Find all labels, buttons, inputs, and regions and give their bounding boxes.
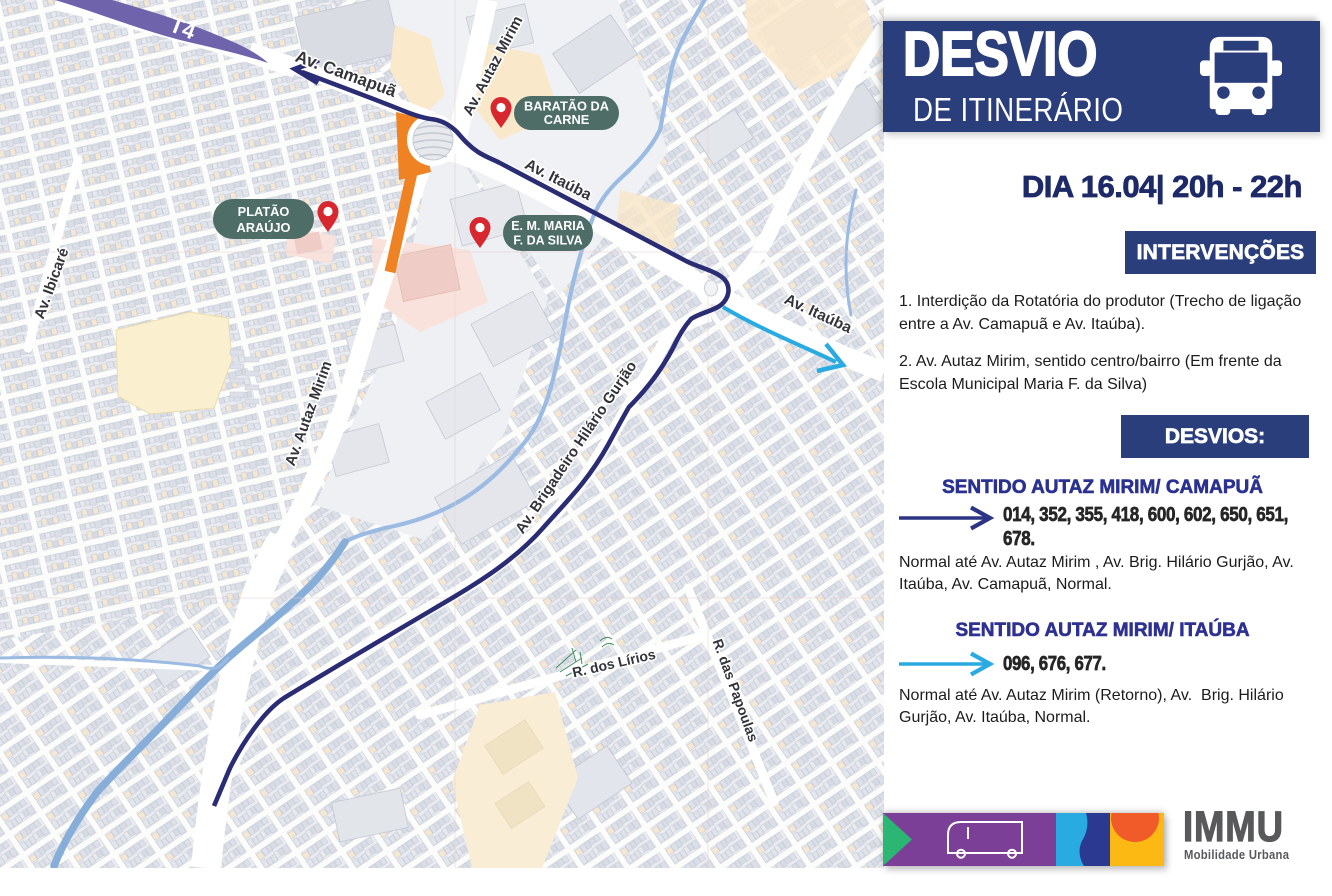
svg-text:F. DA SILVA: F. DA SILVA [513, 234, 582, 248]
svg-text:PLATÃO: PLATÃO [238, 204, 290, 219]
svg-text:ARAÚJO: ARAÚJO [236, 220, 290, 235]
svg-text:CARNE: CARNE [544, 112, 590, 127]
svg-text:E. M. MARIA: E. M. MARIA [511, 219, 585, 233]
